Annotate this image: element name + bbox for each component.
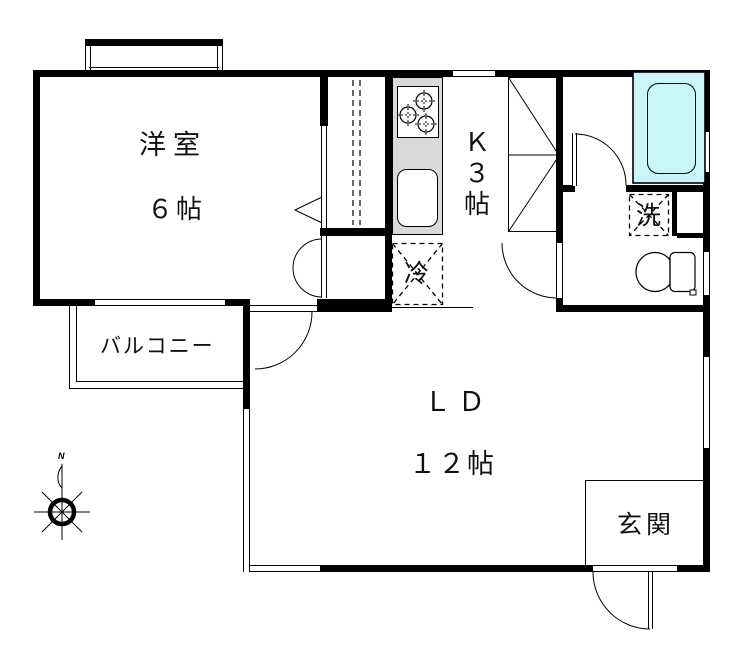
entrance-name: 玄関 [617,511,675,540]
washroom-door-arc [502,243,557,298]
western-room-door-arc [255,312,312,369]
kitchen-sink-icon [398,170,438,227]
closet-fold-door-marker [295,197,322,223]
bathtub-icon [633,72,705,183]
symbol-layer: N [0,0,750,664]
living-dining-size: １２帖 [409,449,496,480]
closet-double-door-arc-top [293,239,322,268]
western-room-name: 洋室 [139,130,207,161]
stove-burners-icon [397,90,437,135]
closet-pipe-lines [353,80,360,225]
toilet-icon [636,253,696,296]
refrigerator-label: 冷 [404,260,429,289]
closet-double-door-arc-bottom [293,268,322,297]
western-room-size: ６帖 [147,195,205,225]
living-dining-name: ＬＤ [424,387,492,418]
entrance-door-arc [593,572,650,629]
compass-north-label: N [58,451,65,461]
kitchen-label: Ｋ ３ 帖 [457,127,497,220]
compass-rose: N [34,451,90,540]
tall-closet-icon [509,78,558,232]
balcony-name: バルコニー [100,335,215,359]
bath-door-arc [575,134,626,185]
floorplan-canvas: N 洋室 ６帖 Ｋ ３ 帖 ＬＤ １２帖 バルコニー 玄関 洗 冷 [0,0,750,664]
washing-machine-label: 洗 [636,202,661,231]
door-arcs [255,134,650,629]
